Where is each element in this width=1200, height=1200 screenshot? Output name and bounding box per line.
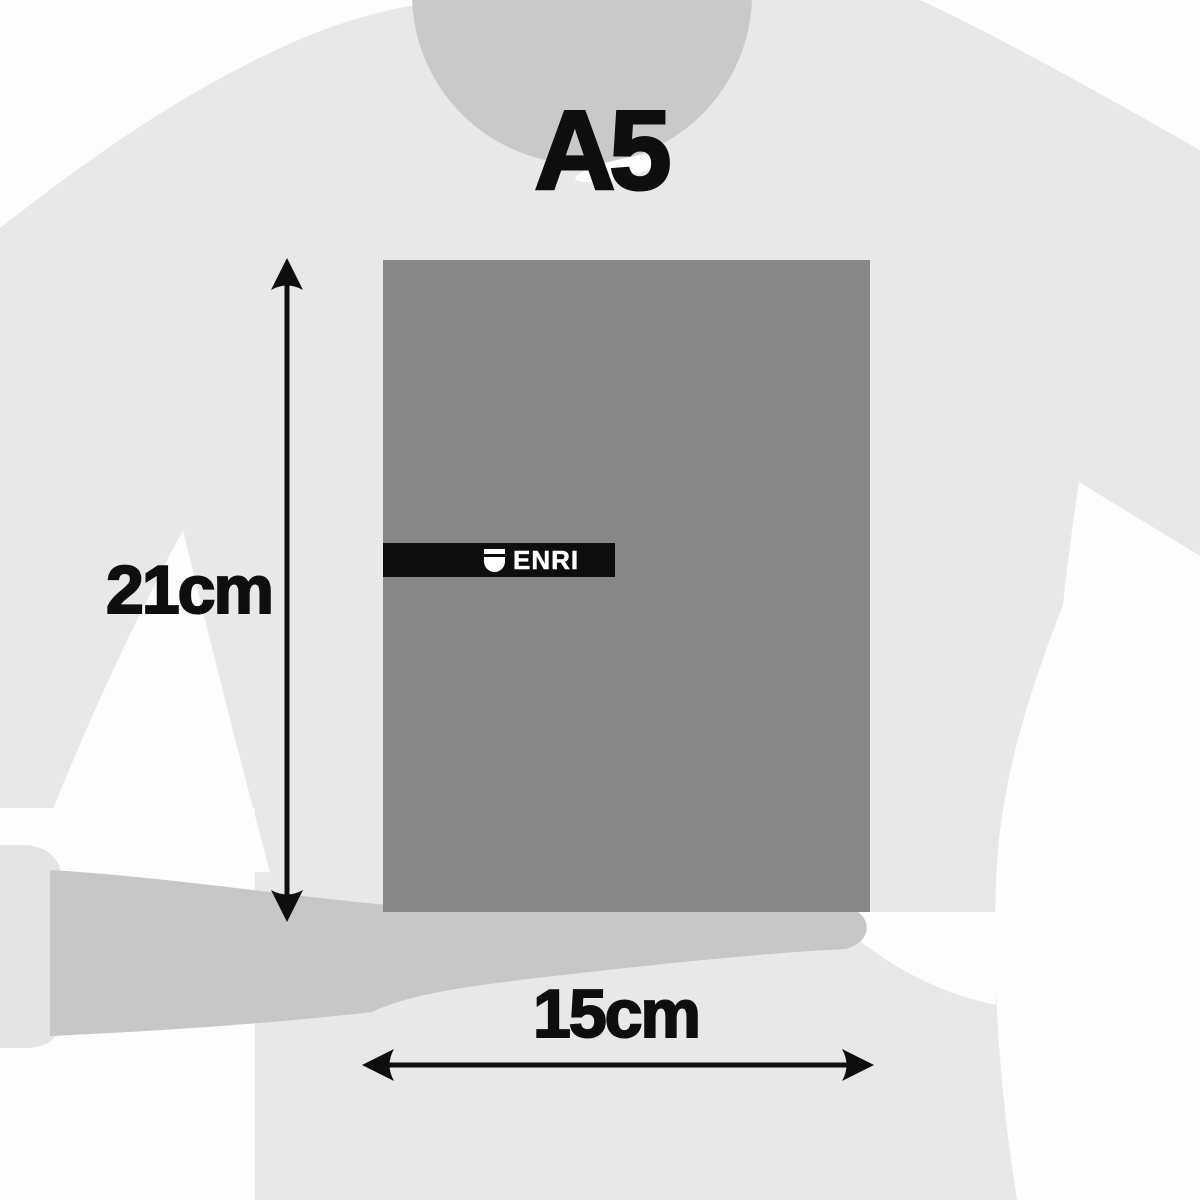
height-dimension-label: 21cm	[106, 556, 272, 624]
product-dimension-diagram: A5 21cm 15cm ENRI	[0, 0, 1200, 1200]
shield-icon	[484, 549, 505, 572]
notepad-cover	[383, 260, 870, 912]
page-title: A5	[534, 95, 665, 207]
brand-name: ENRI	[513, 547, 579, 573]
brand-band: ENRI	[383, 543, 615, 577]
width-dimension-label: 15cm	[533, 980, 699, 1048]
